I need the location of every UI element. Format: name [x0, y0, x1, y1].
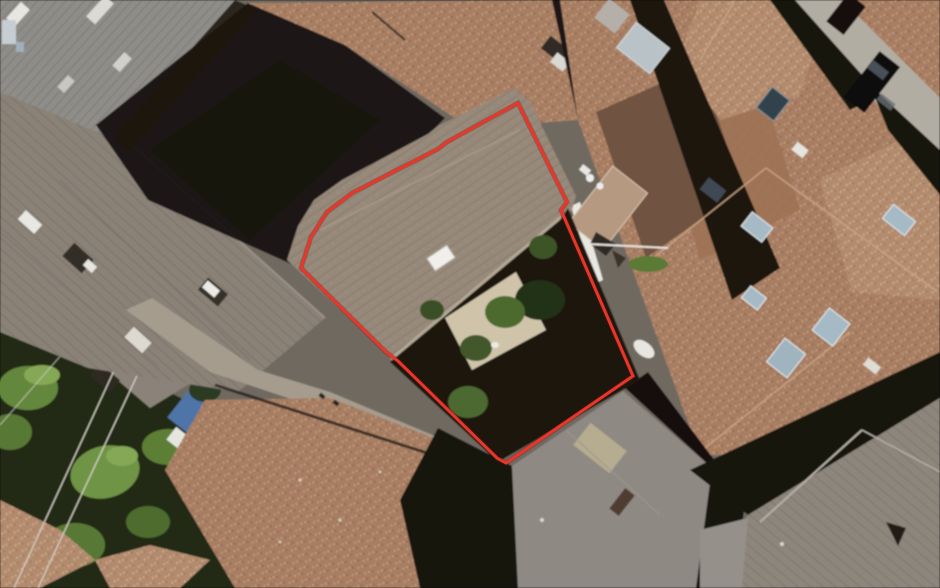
photo-layers — [0, 0, 940, 588]
courtyard-tree — [529, 235, 557, 259]
aerial-photo — [0, 0, 940, 588]
courtyard-table — [491, 342, 499, 348]
aerial-photo-viewport — [0, 0, 940, 588]
rooftop-glass — [2, 20, 16, 44]
